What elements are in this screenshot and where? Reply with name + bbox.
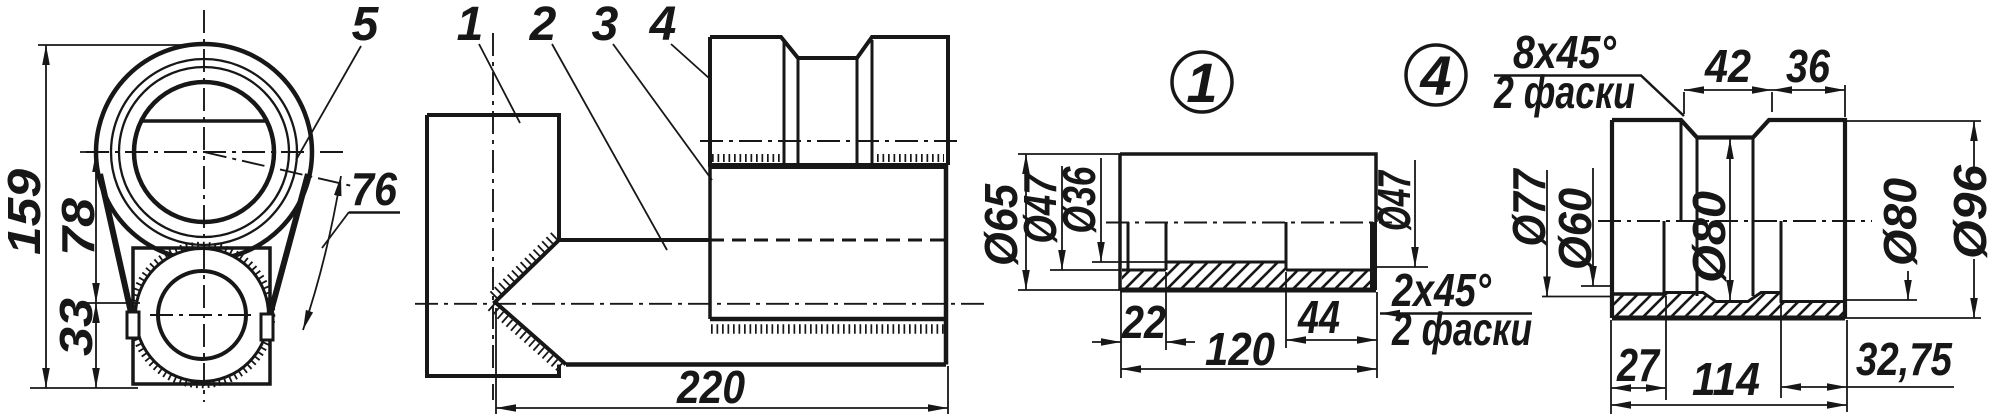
svg-text:Ø80: Ø80 [1874, 178, 1926, 266]
svg-text:42: 42 [1704, 40, 1751, 92]
svg-text:4: 4 [649, 0, 677, 51]
svg-text:1: 1 [457, 0, 484, 51]
svg-text:114: 114 [1692, 353, 1760, 405]
svg-text:2: 2 [529, 0, 557, 51]
svg-text:5: 5 [352, 0, 380, 51]
svg-text:Ø36: Ø36 [1053, 166, 1105, 233]
svg-text:Ø60: Ø60 [1549, 188, 1601, 270]
svg-text:2 фаски: 2 фаски [1493, 66, 1635, 118]
svg-text:2 фаски: 2 фаски [1391, 303, 1532, 355]
svg-text:159: 159 [0, 169, 50, 255]
svg-text:1: 1 [1186, 51, 1217, 114]
svg-text:Ø47: Ø47 [1368, 169, 1420, 231]
svg-text:27: 27 [1616, 339, 1661, 391]
svg-text:36: 36 [1786, 40, 1830, 92]
svg-text:76: 76 [351, 163, 397, 215]
svg-text:3: 3 [592, 0, 619, 51]
svg-text:44: 44 [1297, 291, 1340, 343]
svg-text:120: 120 [1205, 323, 1275, 375]
svg-text:78: 78 [52, 198, 104, 256]
svg-text:Ø80: Ø80 [1683, 191, 1735, 283]
svg-text:22: 22 [1121, 296, 1166, 348]
svg-text:Ø96: Ø96 [1944, 165, 1989, 259]
svg-text:4: 4 [1419, 44, 1451, 107]
svg-text:Ø77: Ø77 [1503, 167, 1555, 246]
svg-text:33: 33 [50, 298, 102, 356]
svg-text:220: 220 [676, 361, 745, 413]
svg-text:32,75: 32,75 [1856, 333, 1953, 385]
